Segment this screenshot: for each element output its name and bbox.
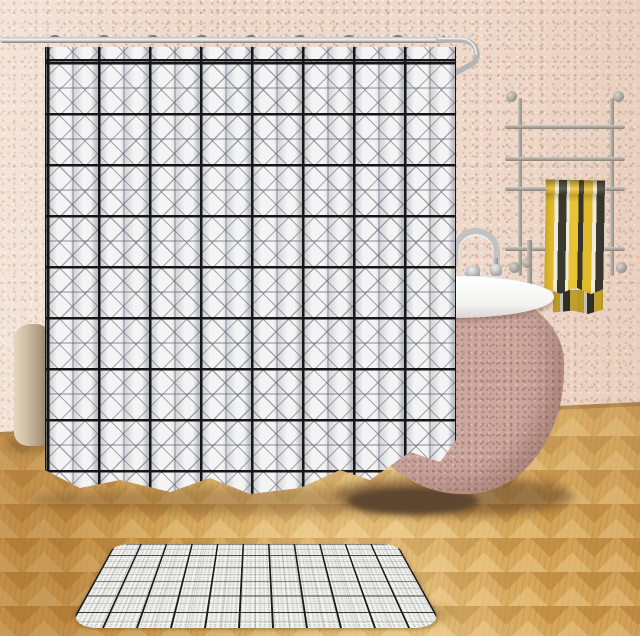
towel-rack-mount [506, 91, 517, 102]
towel-rack-mount [509, 262, 520, 273]
towel-rack-mount [613, 91, 624, 102]
towel-rack-bar [505, 125, 625, 129]
towel-rack-bar [505, 157, 625, 161]
bathroom-product-photo [0, 0, 640, 636]
shower-curtain [45, 47, 456, 509]
bath-mat-area [68, 510, 444, 628]
faucet-handle [490, 264, 502, 276]
towel-rack-pipe-joint [522, 258, 532, 268]
bath-mat [68, 544, 444, 628]
curtain-rod [0, 37, 448, 43]
striped-towel-fold [545, 179, 605, 202]
towel-rack-mount [616, 262, 627, 273]
